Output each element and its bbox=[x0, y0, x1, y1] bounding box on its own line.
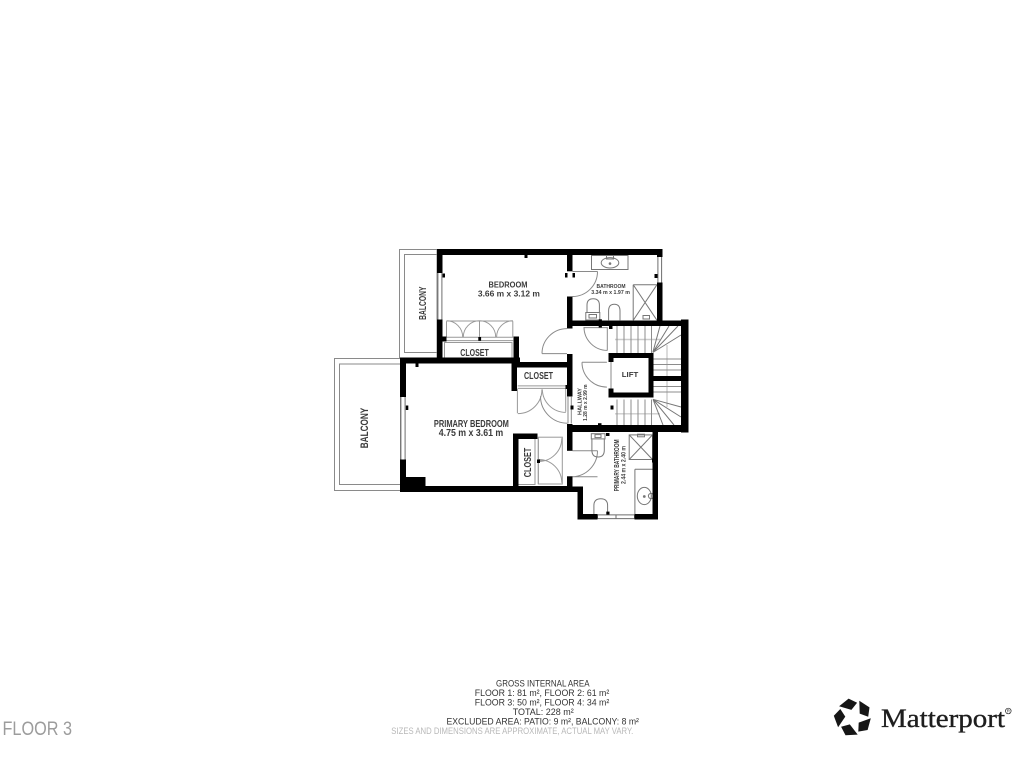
svg-text:R: R bbox=[1007, 709, 1010, 714]
svg-text:LIFT: LIFT bbox=[622, 370, 639, 379]
svg-text:BALCONY: BALCONY bbox=[359, 407, 371, 448]
svg-text:4.75 m x 3.61 m: 4.75 m x 3.61 m bbox=[439, 428, 504, 439]
svg-text:CLOSET: CLOSET bbox=[460, 347, 489, 359]
svg-text:CLOSET: CLOSET bbox=[524, 370, 553, 382]
svg-text:3.66 m x 3.12 m: 3.66 m x 3.12 m bbox=[478, 289, 540, 299]
svg-text:CLOSET: CLOSET bbox=[522, 447, 534, 477]
svg-text:3.34 m x 1.97 m: 3.34 m x 1.97 m bbox=[591, 290, 630, 296]
svg-text:2.44 m x 2.40 m: 2.44 m x 2.40 m bbox=[620, 446, 627, 484]
svg-text:1.28 m x 2.99 m: 1.28 m x 2.99 m bbox=[583, 384, 589, 421]
svg-text:BALCONY: BALCONY bbox=[418, 286, 429, 320]
svg-text:SIZES AND DIMENSIONS ARE APPRO: SIZES AND DIMENSIONS ARE APPROXIMATE, AC… bbox=[391, 726, 633, 737]
svg-text:FLOOR 3: FLOOR 3 bbox=[3, 718, 73, 740]
svg-text:Matterport: Matterport bbox=[881, 704, 1006, 733]
